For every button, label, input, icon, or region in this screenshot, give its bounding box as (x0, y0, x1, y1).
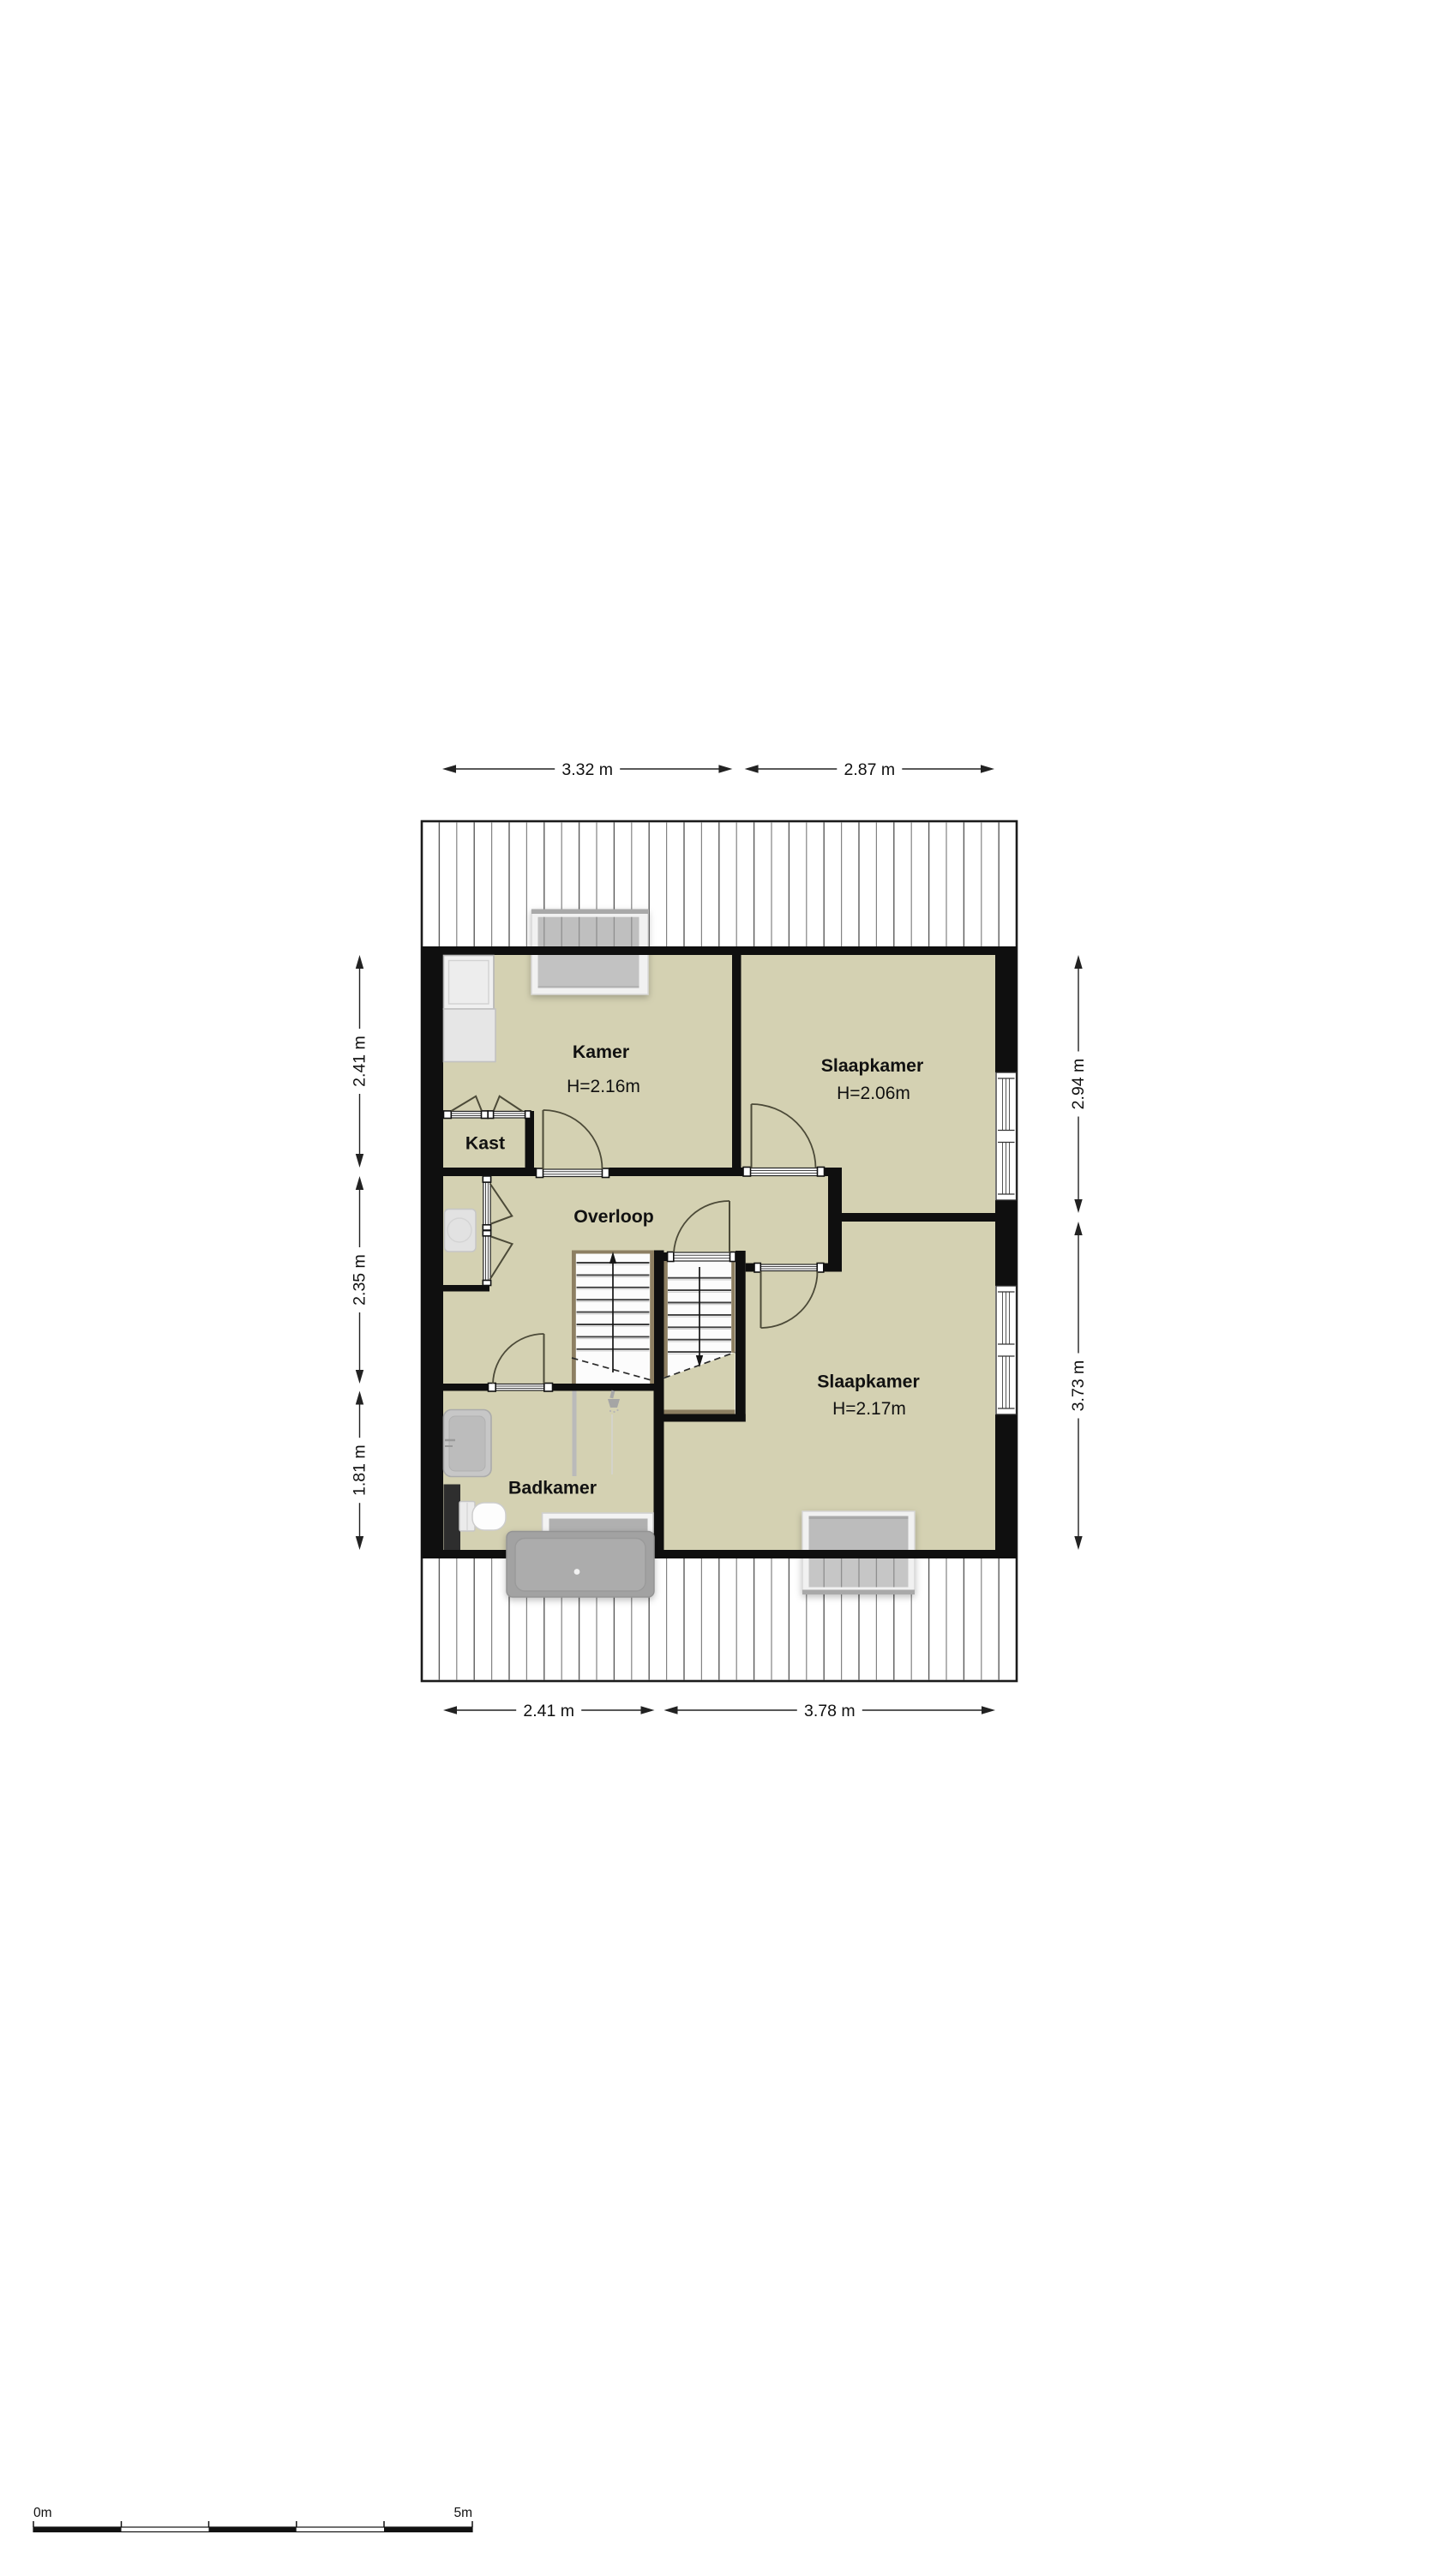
svg-text:H=2.06m: H=2.06m (837, 1084, 910, 1103)
svg-text:Kast: Kast (465, 1133, 505, 1154)
svg-text:2.87 m: 2.87 m (844, 760, 895, 779)
svg-text:2.35 m: 2.35 m (351, 1254, 369, 1306)
svg-text:Slaapkamer: Slaapkamer (821, 1055, 924, 1076)
svg-text:2.41 m: 2.41 m (351, 1036, 369, 1087)
svg-text:5m: 5m (453, 2506, 472, 2520)
svg-text:2.94 m: 2.94 m (1069, 1059, 1088, 1110)
svg-text:1.81 m: 1.81 m (351, 1444, 369, 1496)
svg-text:3.32 m: 3.32 m (561, 760, 613, 779)
svg-text:Badkamer: Badkamer (508, 1478, 597, 1498)
svg-text:3.73 m: 3.73 m (1069, 1360, 1088, 1412)
svg-text:3.78 m: 3.78 m (804, 1702, 856, 1720)
svg-text:H=2.16m: H=2.16m (567, 1077, 640, 1096)
svg-text:Overloop: Overloop (573, 1206, 654, 1227)
svg-text:Kamer: Kamer (573, 1042, 629, 1062)
svg-text:0m: 0m (33, 2506, 52, 2520)
svg-text:H=2.17m: H=2.17m (832, 1399, 906, 1419)
svg-text:2.41 m: 2.41 m (523, 1702, 574, 1720)
svg-text:Slaapkamer: Slaapkamer (817, 1372, 920, 1392)
